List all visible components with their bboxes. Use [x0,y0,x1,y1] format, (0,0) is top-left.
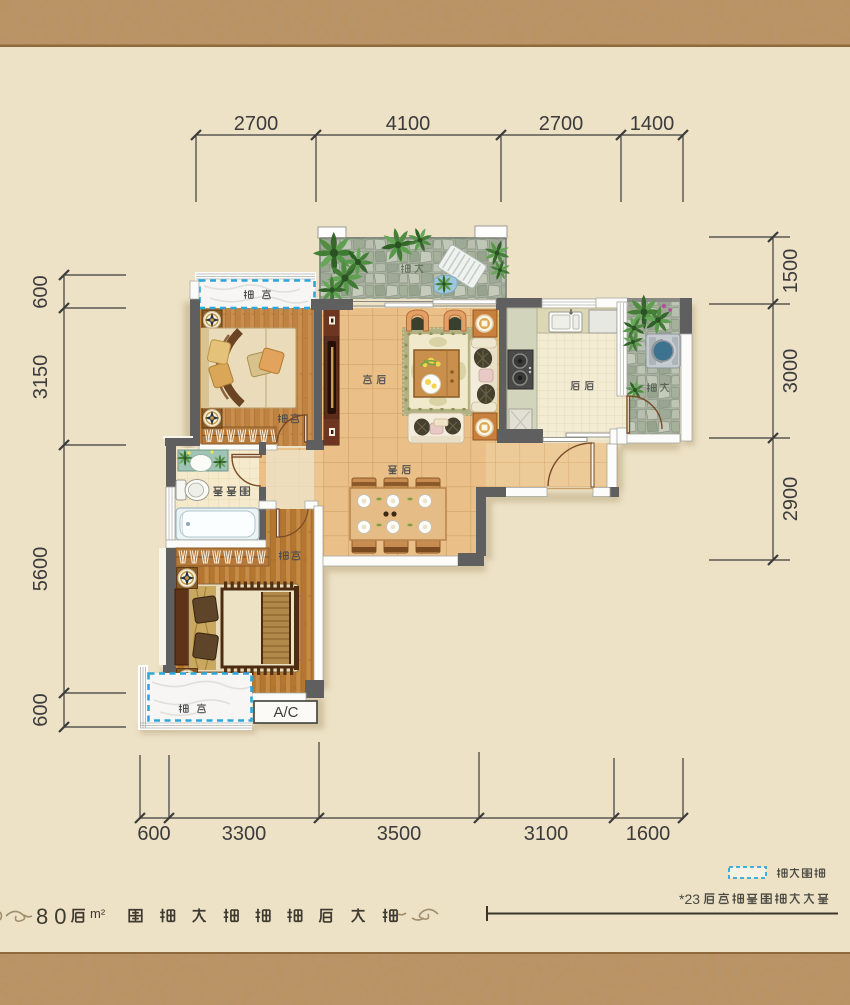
svg-text:2700: 2700 [539,113,584,135]
svg-text:3150: 3150 [30,355,52,400]
svg-text:80: 80 [36,904,72,929]
svg-text:*23: *23 [679,891,700,907]
svg-text:1400: 1400 [630,113,675,135]
svg-text:1500: 1500 [780,249,802,294]
svg-text:3300: 3300 [222,823,267,845]
svg-text:3000: 3000 [780,349,802,394]
svg-text:1600: 1600 [626,823,671,845]
svg-text:3500: 3500 [377,823,422,845]
svg-text:600: 600 [30,693,52,726]
svg-text:m²: m² [90,906,106,921]
svg-text:2900: 2900 [780,477,802,522]
svg-text:5600: 5600 [30,547,52,592]
svg-text:600: 600 [30,275,52,308]
svg-text:600: 600 [137,823,170,845]
svg-text:A/C: A/C [273,704,298,721]
svg-text:2700: 2700 [234,113,279,135]
svg-text:3100: 3100 [524,823,569,845]
svg-text:4100: 4100 [386,113,431,135]
